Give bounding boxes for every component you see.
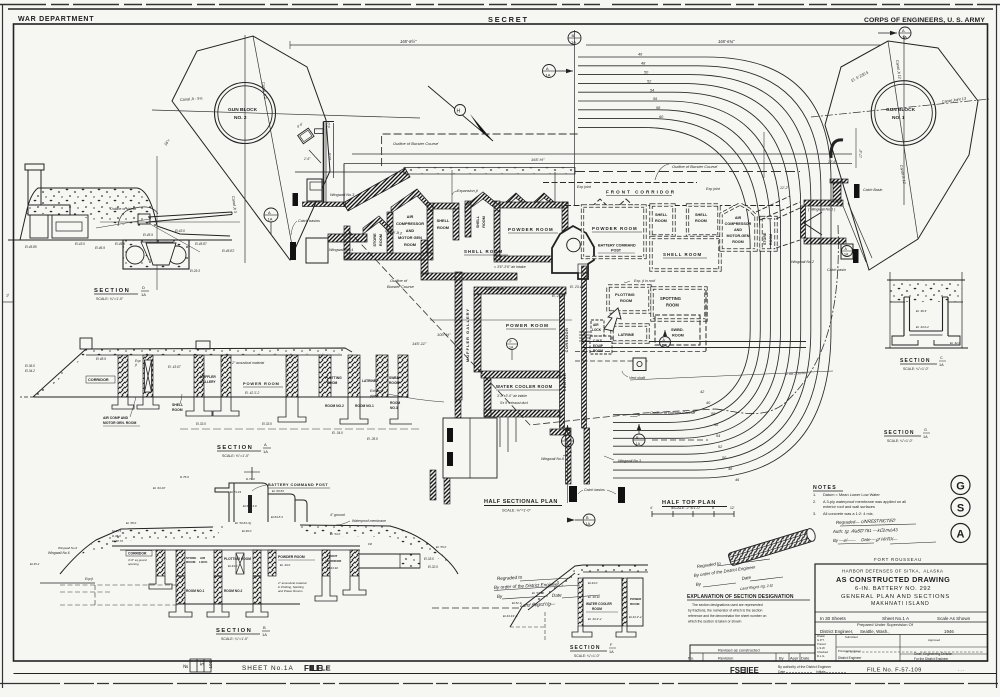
- svg-text:2" acoustical material: 2" acoustical material: [231, 361, 264, 365]
- svg-text:ROOM: ROOM: [672, 334, 684, 338]
- svg-text:Revised as constructed: Revised as constructed: [718, 648, 760, 653]
- svg-text:El. 55.0: El. 55.0: [436, 545, 447, 549]
- svg-text:El.45.8'2: El.45.8'2: [222, 249, 235, 253]
- svg-text:Waterproof membrane: Waterproof membrane: [352, 519, 386, 523]
- svg-text:AIR: AIR: [735, 216, 742, 220]
- svg-text:6-IN. BATTERY NO. 292: 6-IN. BATTERY NO. 292: [855, 586, 931, 592]
- svg-text:by fractions, the numerator: by fractions, the numerator of which is …: [688, 609, 763, 613]
- svg-text:A: A: [957, 529, 965, 541]
- svg-text:ROOM NO.2: ROOM NO.2: [224, 589, 242, 593]
- svg-text:ROOM: ROOM: [327, 381, 338, 385]
- svg-text:Date: Date: [801, 656, 810, 661]
- svg-text:WATER COOLER: WATER COOLER: [586, 602, 612, 606]
- svg-text:No.: No.: [688, 656, 694, 661]
- svg-text:Initials: Initials: [816, 670, 826, 674]
- svg-text:4" ground: 4" ground: [330, 513, 345, 517]
- svg-text:SCALE: ¼"=1'-0": SCALE: ¼"=1'-0": [903, 367, 930, 371]
- svg-text:M.35.5: M.35.5: [112, 529, 122, 533]
- svg-text:PLOTTING ROOM: PLOTTING ROOM: [224, 557, 251, 561]
- svg-text:Approved: Approved: [928, 638, 940, 642]
- svg-text:MUFFLER GALLERY: MUFFLER GALLERY: [465, 308, 470, 362]
- svg-text:The section designations us: The section designations used are repres…: [692, 603, 763, 607]
- svg-text:SECTION: SECTION: [570, 645, 601, 651]
- svg-text:LATRINE: LATRINE: [362, 379, 377, 383]
- svg-text:El.63.8.3: El.63.8.3: [271, 515, 283, 519]
- svg-text:El. 63.20': El. 63.20': [153, 486, 166, 490]
- svg-text:165'-6¾": 165'-6¾": [718, 39, 735, 44]
- svg-text:AND: AND: [406, 228, 415, 233]
- svg-text:El.43.92: El.43.92: [327, 566, 338, 570]
- svg-text:4': 4': [691, 506, 694, 510]
- svg-text:1A: 1A: [609, 650, 614, 654]
- svg-text:Fill: Fill: [368, 542, 372, 546]
- svg-text:4': 4': [650, 506, 653, 510]
- svg-text:C: C: [940, 356, 943, 360]
- svg-text:By: By: [497, 594, 503, 599]
- svg-text:1A: 1A: [939, 363, 944, 367]
- svg-text:MOTOR GEN. ROOM: MOTOR GEN. ROOM: [103, 421, 136, 425]
- svg-text:1A: 1A: [902, 35, 907, 40]
- svg-text:POWER ROOM: POWER ROOM: [243, 381, 280, 386]
- svg-text:𝐿𝑎𝑛𝑑 𝑅𝑒𝑔𝑟𝑑 ℓ𝑓𝑔—: 𝐿𝑎𝑛𝑑 𝑅𝑒𝑔𝑟𝑑 ℓ𝑓𝑔—: [520, 601, 556, 608]
- svg-text:Outline of Burster Course': Outline of Burster Course': [393, 141, 439, 146]
- svg-text:District Engineer: District Engineer: [838, 656, 862, 660]
- svg-text:WATER COOLER ROOM: WATER COOLER ROOM: [496, 384, 553, 389]
- svg-text:HARBOR DEFENSES OF SITKA,: HARBOR DEFENSES OF SITKA, ALASKA: [842, 569, 943, 574]
- svg-text:52: 52: [647, 80, 652, 84]
- svg-text:El. 28.0: El. 28.0: [367, 437, 378, 441]
- svg-text:8'-6": 8'-6": [296, 121, 304, 128]
- svg-text:SCALE: ⅛"=1'-0": SCALE: ⅛"=1'-0": [222, 454, 250, 458]
- svg-text:El.43.3'-2: El.43.3'-2: [629, 615, 642, 619]
- svg-text:El. 32.0: El. 32.0: [950, 341, 961, 345]
- svg-text:AS CONSTRUCTED DRAWING: AS CONSTRUCTED DRAWING: [836, 575, 950, 584]
- svg-text:12'-2": 12'-2": [780, 186, 789, 190]
- svg-text:Wingwall No.6: Wingwall No.6: [58, 546, 77, 550]
- svg-text:SECRET: SECRET: [488, 15, 529, 24]
- svg-text:El.43.43'-6: El.43.43'-6: [503, 614, 518, 618]
- svg-text:El.43.0: El.43.0: [228, 564, 238, 568]
- svg-text:SHEET No.1A: SHEET No.1A: [242, 665, 294, 672]
- svg-text:ROOM: ROOM: [437, 225, 449, 230]
- svg-text:Canal Jt 12: Canal Jt 12: [899, 164, 906, 184]
- svg-text:All concrete was a 1:2: 4: All concrete was a 1:2: 4 mix.: [823, 511, 874, 516]
- svg-text:ROOM: ROOM: [732, 240, 743, 244]
- svg-text:El.34.2: El.34.2: [25, 369, 35, 373]
- svg-text:46: 46: [735, 478, 740, 482]
- svg-text:POST: POST: [611, 249, 622, 253]
- svg-text:1A: 1A: [636, 442, 641, 446]
- svg-text:G: G: [956, 481, 965, 493]
- svg-text:Catch basin: Catch basin: [827, 268, 846, 272]
- svg-text:( Wingwall No.1 ): ( Wingwall No.1 ): [808, 208, 835, 212]
- svg-text:CENTER: CENTER: [563, 373, 567, 392]
- svg-text:SCALE: 2"= 1'-0": SCALE: 2"= 1'-0": [672, 506, 702, 510]
- svg-text:ROOM: ROOM: [593, 349, 603, 353]
- svg-text:POWER: POWER: [630, 597, 642, 601]
- svg-text:El. 69.83: El. 69.83: [272, 489, 284, 493]
- svg-text:48: 48: [641, 62, 646, 66]
- svg-text:Catch basins: Catch basins: [584, 488, 605, 492]
- svg-text:145'-11": 145'-11": [412, 341, 427, 346]
- svg-text:ROOM: ROOM: [404, 242, 416, 247]
- svg-text:MOTOR-GEN: MOTOR-GEN: [727, 234, 750, 238]
- svg-text:5'x 5' exhaust duct: 5'x 5' exhaust duct: [500, 401, 529, 405]
- svg-text:12': 12': [730, 506, 735, 510]
- svg-text:Date: Date: [741, 575, 751, 581]
- svg-text:Catch Basin: Catch Basin: [863, 188, 882, 192]
- svg-text:1A: 1A: [844, 253, 849, 257]
- svg-text:Canal Jt 12: Canal Jt 12: [895, 60, 902, 80]
- svg-text:ROOM: ROOM: [389, 381, 400, 385]
- svg-text:and Power Rooms: and Power Rooms: [278, 589, 303, 593]
- svg-text:COMPRESSOR: COMPRESSOR: [725, 222, 752, 226]
- svg-text:El. 53.49: El. 53.49: [532, 591, 544, 595]
- svg-text:GUN BLOCK: GUN BLOCK: [886, 107, 916, 113]
- svg-text:SPOTTING: SPOTTING: [660, 296, 681, 301]
- svg-text:Exp joint: Exp joint: [706, 187, 721, 191]
- svg-text:El. 34.0: El. 34.0: [332, 431, 343, 435]
- svg-text:SCALE: ¼"=1'-0": SCALE: ¼"=1'-0": [574, 654, 601, 658]
- svg-text:40: 40: [706, 401, 711, 405]
- svg-text:ROOM: ROOM: [769, 234, 773, 245]
- svg-text:El.43.0: El.43.0: [75, 242, 85, 246]
- svg-text:Seattle, Wash.,: Seattle, Wash.,: [860, 629, 890, 634]
- svg-text:SHELL ROOM: SHELL ROOM: [663, 252, 702, 257]
- svg-text:MAKHNATI ISLAND: MAKHNATI ISLAND: [871, 601, 930, 607]
- svg-text:El. 43.0-2: El. 43.0-2: [916, 325, 929, 329]
- svg-text:S: S: [957, 503, 964, 515]
- svg-text:El.58.72: El.58.72: [112, 539, 123, 543]
- svg-text:1A: 1A: [662, 344, 667, 348]
- svg-text:⅔: ⅔: [5, 293, 10, 297]
- svg-text:ROOM: ROOM: [655, 219, 667, 223]
- svg-text:ROOM: ROOM: [695, 219, 707, 223]
- svg-text:HALF SECTIONAL PLAN: HALF SECTIONAL PLAN: [484, 499, 558, 505]
- svg-text:109: 109: [208, 660, 213, 668]
- svg-text:100'-½": 100'-½": [437, 332, 451, 337]
- svg-text:Expansion jt: Expansion jt: [457, 189, 479, 193]
- svg-text:2 dia 2 30/00: 2 dia 2 30/00: [785, 371, 806, 376]
- svg-text:𝐿𝑎𝑛𝑑 𝑅𝑒𝑔𝑟𝑑. ℓ𝑓𝑔. 2.: 𝐿𝑎𝑛𝑑 𝑅𝑒𝑔𝑟𝑑. ℓ𝑓𝑔. 2.ℓ2: [740, 584, 773, 591]
- svg-text:AIR: AIR: [593, 323, 599, 327]
- svg-text:- , -: - , -: [958, 667, 965, 672]
- svg-text:Date: Date: [552, 592, 562, 598]
- svg-text:FILE No. F-57-109: FILE No. F-57-109: [867, 668, 922, 674]
- svg-text:El.36.0: El.36.0: [25, 364, 35, 368]
- svg-text:B: B: [586, 516, 589, 520]
- svg-text:MUFFLER: MUFFLER: [200, 375, 216, 379]
- svg-text:SHELL: SHELL: [655, 213, 668, 217]
- svg-text:12"x18" plate: 12"x18" plate: [484, 287, 504, 291]
- svg-text:Auth: 𝑡𝑔. 𝐴𝑙𝑎𝑆𝐷 781 —: Auth: 𝑡𝑔. 𝐴𝑙𝑎𝑆𝐷 781 —𝑘𝐶2𝑚Ԃ43: [832, 527, 898, 534]
- svg-text:El. 38.4': El. 38.4': [916, 309, 927, 313]
- svg-text:POWER ROOM: POWER ROOM: [506, 323, 549, 328]
- svg-text:SECTION: SECTION: [884, 430, 915, 436]
- svg-text:El.67.13.0: El.67.13.0: [243, 504, 257, 508]
- svg-text:Canal Jt 3: Canal Jt 3: [231, 196, 237, 214]
- svg-text:GALLERY: GALLERY: [200, 380, 216, 384]
- svg-text:For the District Engineer: For the District Engineer: [914, 657, 949, 661]
- svg-text:Revision: Revision: [718, 656, 733, 661]
- svg-text:17'-6": 17'-6": [859, 149, 863, 158]
- svg-text:F: F: [610, 643, 613, 647]
- svg-text:EQUIP: EQUIP: [593, 344, 604, 348]
- svg-text:№: №: [183, 664, 188, 670]
- svg-text:PLOTTING: PLOTTING: [325, 376, 342, 380]
- svg-text:1A: 1A: [268, 217, 273, 222]
- svg-text:GENERAL PLAN AND SECTIONS: GENERAL PLAN AND SECTIONS: [841, 594, 950, 600]
- svg-text:Canal Jt - 5¼: Canal Jt - 5¼: [180, 96, 204, 102]
- svg-text:By: By: [779, 656, 784, 661]
- svg-text:FORT ROUSSEAU: FORT ROUSSEAU: [874, 557, 922, 562]
- svg-text:which the section is taken: which the section is taken or shown: [688, 620, 741, 624]
- svg-text:48: 48: [728, 467, 733, 471]
- svg-text:Outline of Burster Course: Outline of Burster Course: [650, 410, 696, 415]
- svg-text:R.L.G.: R.L.G.: [817, 654, 825, 658]
- svg-text:Canal Joint 13: Canal Joint 13: [942, 97, 967, 104]
- svg-text:NO. 1: NO. 1: [892, 115, 905, 121]
- svg-text:B: B: [572, 33, 575, 38]
- svg-text:16'≈: 16'≈: [164, 138, 172, 147]
- svg-text:El.45.2: El.45.2: [30, 562, 40, 566]
- svg-text:G: G: [924, 428, 927, 432]
- svg-text:POWDER ROOM: POWDER ROOM: [278, 555, 305, 559]
- svg-text:SHELL: SHELL: [695, 213, 708, 217]
- svg-text:2.: 2.: [813, 499, 816, 504]
- svg-text:165'-8½": 165'-8½": [400, 39, 417, 44]
- svg-text:El.45.9: El.45.9: [143, 233, 153, 237]
- svg-text:El.32.0: El.32.0: [428, 565, 438, 569]
- svg-text:1A: 1A: [923, 435, 928, 439]
- svg-text:PLOTTING: PLOTTING: [615, 292, 635, 297]
- svg-text:NO. 2: NO. 2: [234, 115, 247, 121]
- svg-text:El.33.0: El.33.0: [424, 557, 434, 561]
- svg-text:FRONT: FRONT: [327, 554, 337, 558]
- svg-text:El.33.0: El.33.0: [196, 422, 206, 426]
- svg-text:Catch basins: Catch basins: [298, 219, 320, 223]
- svg-text:Wingwall No.2: Wingwall No.2: [791, 260, 814, 264]
- svg-text:EXPLANATION OF SECTION DESI: EXPLANATION OF SECTION DESIGNATION: [687, 594, 794, 600]
- svg-text:Burster Course: Burster Course: [387, 284, 415, 289]
- svg-text:El. 43.67: El. 43.67: [168, 365, 181, 369]
- svg-text:1A: 1A: [571, 40, 576, 45]
- svg-text:opening: opening: [128, 562, 139, 566]
- svg-text:SWBD: SWBD: [389, 376, 400, 380]
- svg-text:D: D: [142, 285, 145, 290]
- svg-text:C.W.S.: C.W.S.: [593, 339, 603, 343]
- svg-text:CORRIDOR: CORRIDOR: [128, 552, 147, 556]
- svg-text:57: 57: [200, 660, 206, 666]
- svg-text:1.: 1.: [813, 492, 816, 497]
- svg-text:SWBD.: SWBD.: [671, 328, 684, 332]
- svg-text:MOTOR GEN: MOTOR GEN: [398, 235, 422, 240]
- svg-text:A: A: [264, 442, 267, 447]
- svg-text:BATTERY COMMAND POST: BATTERY COMMAND POST: [268, 483, 328, 487]
- svg-text:El. 43.0: El. 43.0: [280, 563, 291, 567]
- svg-text:jt: jt: [134, 363, 137, 367]
- svg-text:D.76.0: D.76.0: [180, 475, 189, 479]
- svg-text:ROOM: ROOM: [630, 602, 640, 606]
- svg-text:El.43.0: El.43.0: [588, 581, 598, 585]
- svg-text:54: 54: [716, 434, 720, 438]
- svg-text:Scale As Shown: Scale As Shown: [937, 616, 971, 621]
- svg-text:Wingwall No.6: Wingwall No.6: [541, 457, 564, 461]
- svg-text:CORRIDOR: CORRIDOR: [325, 559, 342, 563]
- svg-text:El.33.0: El.33.0: [262, 422, 272, 426]
- svg-text:reference and the denominat: reference and the denominator the sheet …: [688, 614, 767, 618]
- svg-text:2'-6": 2'-6": [303, 157, 311, 161]
- svg-text:SECTION: SECTION: [94, 288, 130, 294]
- svg-text:El. 59.63 rfg: El. 59.63 rfg: [235, 521, 252, 525]
- svg-text:CORRIDOR: CORRIDOR: [88, 378, 109, 382]
- svg-text:SECTION: SECTION: [900, 358, 931, 364]
- svg-text:El. 42.3'-2: El. 42.3'-2: [245, 391, 259, 395]
- svg-text:Date: Date: [778, 670, 785, 674]
- svg-text:Canal Jt 2: Canal Jt 2: [261, 82, 267, 100]
- svg-text:1A: 1A: [141, 292, 146, 297]
- svg-text:ROOM NO.1: ROOM NO.1: [355, 404, 374, 408]
- svg-text:AIR: AIR: [407, 214, 414, 219]
- svg-text:STORE: STORE: [763, 232, 767, 245]
- svg-text:El.39.0: El.39.0: [242, 529, 252, 533]
- svg-text:Prepared Under Supervision: Prepared Under Supervision Of: [857, 622, 914, 627]
- svg-text:By: By: [695, 581, 702, 587]
- svg-text:Datum = Mean Lower Low Wate: Datum = Mean Lower Low Water: [823, 492, 881, 497]
- svg-text:El. 58.0: El. 58.0: [126, 521, 137, 525]
- svg-text:ROOM NO.2: ROOM NO.2: [325, 404, 344, 408]
- svg-text:50: 50: [722, 456, 727, 460]
- svg-text:ROOM: ROOM: [186, 560, 196, 564]
- svg-text:WAR DEPARTMENT: WAR DEPARTMENT: [18, 16, 94, 23]
- svg-text:10'-6": 10'-6": [328, 151, 332, 160]
- svg-text:Wingwall No.3: Wingwall No.3: [618, 459, 641, 463]
- svg-text:El.74.33: El.74.33: [230, 490, 241, 494]
- svg-text:52: 52: [718, 445, 723, 449]
- svg-text:50: 50: [644, 71, 649, 75]
- svg-text:El.43.0: El.43.0: [175, 229, 185, 233]
- svg-text:ƎIEE: ƎIEE: [741, 666, 759, 675]
- svg-text:SHELL: SHELL: [476, 215, 480, 228]
- svg-text:POWDER ROOM: POWDER ROOM: [508, 227, 554, 232]
- svg-text:A: A: [902, 28, 905, 33]
- svg-text:In 30 Sheets: In 30 Sheets: [820, 616, 846, 621]
- svg-text:El.45.87: El.45.87: [195, 242, 207, 246]
- svg-text:1A: 1A: [263, 449, 268, 454]
- svg-text:GUN BLOCK: GUN BLOCK: [228, 107, 258, 113]
- svg-text:ROOM: ROOM: [172, 408, 183, 412]
- svg-text:165'-½": 165'-½": [531, 157, 545, 162]
- svg-text:By authority of the Distri: By authority of the District Engineer: [778, 665, 832, 669]
- svg-text:CORRIDOR: CORRIDOR: [565, 328, 569, 353]
- svg-text:Submitted: Submitted: [845, 635, 858, 639]
- svg-text:A: A: [546, 66, 549, 71]
- svg-text:ROOM NO.1: ROOM NO.1: [186, 589, 204, 593]
- svg-text:Exp jt: Exp jt: [85, 577, 93, 581]
- svg-text:NO.3: NO.3: [390, 406, 398, 410]
- svg-text:SECTION: SECTION: [216, 628, 252, 634]
- svg-text:SCALE: ¼"=1'-0": SCALE: ¼"=1'-0": [96, 297, 124, 301]
- svg-text:exterior roof and wall sur: exterior roof and wall surfaces: [823, 504, 875, 509]
- svg-text:Regraded— 𝑈𝑁𝑅𝐸𝑆𝑇𝑅𝐼𝐶𝑇: Regraded— 𝑈𝑁𝑅𝐸𝑆𝑇𝑅𝐼𝐶𝑇𝐸𝐷: [836, 518, 896, 525]
- svg-text:54: 54: [650, 89, 654, 93]
- svg-text:1A: 1A: [586, 522, 591, 526]
- svg-text:El.45.85: El.45.85: [25, 245, 37, 249]
- svg-text:ROOM: ROOM: [482, 216, 486, 227]
- svg-text:42: 42: [700, 390, 705, 394]
- svg-text:D.74.0: D.74.0: [246, 477, 255, 481]
- svg-text:ROOM: ROOM: [390, 401, 401, 405]
- svg-text:El 48.9: El 48.9: [96, 357, 106, 361]
- svg-text:Regraded to: Regraded to: [696, 561, 721, 569]
- svg-text:3'-0"x3'-0" air intake: 3'-0"x3'-0" air intake: [497, 394, 527, 398]
- svg-text:12'-6": 12'-6": [828, 160, 837, 164]
- svg-text:Wingwall No.6: Wingwall No.6: [48, 551, 70, 555]
- svg-text:Outline of Burster Course': Outline of Burster Course': [672, 164, 718, 169]
- svg-text:A: A: [268, 210, 271, 215]
- svg-text:3.: 3.: [813, 511, 816, 516]
- svg-text:Regraded to: Regraded to: [497, 575, 523, 581]
- svg-text:ROOM: ROOM: [378, 234, 383, 246]
- svg-text:F: F: [510, 340, 512, 344]
- svg-text:H: H: [457, 109, 461, 115]
- svg-text:ROOM: ROOM: [620, 298, 632, 303]
- svg-text:60: 60: [659, 115, 664, 119]
- svg-text:0: 0: [671, 506, 673, 510]
- svg-text:LE: LE: [321, 664, 331, 673]
- svg-text:El. 43.3'-2: El. 43.3'-2: [588, 617, 602, 621]
- svg-text:El.46.9: El.46.9: [95, 246, 105, 250]
- svg-text:ROOM: ROOM: [666, 303, 679, 308]
- svg-text:SHELL: SHELL: [437, 218, 450, 223]
- svg-text:El.29.3: El.29.3: [190, 269, 200, 273]
- svg-text:COMPRESSOR: COMPRESSOR: [396, 221, 424, 226]
- svg-text:SHELL: SHELL: [172, 403, 183, 407]
- svg-text:El. 53.0: El. 53.0: [330, 532, 341, 536]
- svg-text:By —𝑒𝑙—— Date —𝑔𝑓 𝐻�: By —𝑒𝑙—— Date —𝑔𝑓 𝐻𝑉𝑅𝑋—: [833, 536, 898, 543]
- svg-text:Sheet No.1 A: Sheet No.1 A: [882, 616, 910, 621]
- svg-text:SCALE: ¼"=1'-0": SCALE: ¼"=1'-0": [221, 637, 249, 641]
- svg-text:El.45.9: El.45.9: [115, 242, 125, 246]
- svg-text:Wingwall No.3: Wingwall No.3: [330, 193, 355, 197]
- svg-text:Outline of shield: Outline of shield: [110, 207, 137, 211]
- svg-text:D.36.0: D.36.0: [112, 534, 121, 538]
- svg-text:SCALE: ¼"=1'-0": SCALE: ¼"=1'-0": [887, 439, 914, 443]
- svg-text:LOCK: LOCK: [592, 328, 602, 332]
- svg-text:LOCK: LOCK: [199, 560, 208, 564]
- svg-text:1A: 1A: [509, 346, 514, 350]
- svg-text:1946: 1946: [944, 629, 954, 634]
- svg-text:46: 46: [638, 53, 643, 57]
- svg-text:3'6"-3'6" air intake: 3'6"-3'6" air intake: [497, 265, 526, 269]
- svg-text:1A: 1A: [546, 73, 551, 78]
- svg-text:POWDER ROOM: POWDER ROOM: [592, 226, 638, 231]
- svg-text:El. 5' 230.5: El. 5' 230.5: [851, 70, 870, 83]
- svg-text:SCALE: ⅛"=1'-0": SCALE: ⅛"=1'-0": [502, 509, 532, 513]
- svg-text:BATTERY COMMAND: BATTERY COMMAND: [598, 244, 636, 248]
- svg-text:AIR COMP AND: AIR COMP AND: [103, 416, 129, 420]
- svg-text:1A: 1A: [564, 443, 569, 447]
- svg-text:CORPS OF ENGINEERS, U. S. A: CORPS OF ENGINEERS, U. S. ARMY: [864, 17, 985, 24]
- svg-text:B: B: [263, 625, 266, 630]
- svg-text:Outline of: Outline of: [390, 278, 408, 283]
- svg-text:NOTES: NOTES: [813, 485, 837, 491]
- svg-text:Appr: Appr: [790, 656, 799, 661]
- svg-text:STORE: STORE: [372, 233, 377, 247]
- svg-text:8': 8': [712, 506, 715, 510]
- svg-text:LATRINE: LATRINE: [618, 333, 635, 337]
- svg-text:Principal Engineer: Principal Engineer: [838, 649, 861, 653]
